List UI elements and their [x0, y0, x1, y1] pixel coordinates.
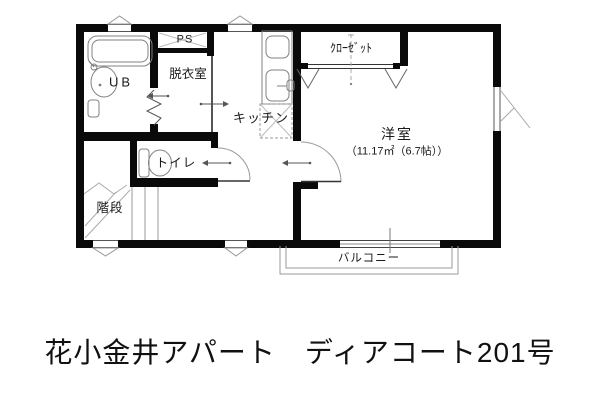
- room-label-stairs: 階段: [96, 202, 123, 215]
- western-room-door-swing-arc-icon: [301, 142, 341, 182]
- room-label-toilet: トイレ: [156, 157, 197, 170]
- room-label-unit-bath: UB: [109, 76, 133, 89]
- room-label-dressing-room: 脱衣室: [169, 68, 207, 81]
- casement-window-icon: [494, 87, 530, 131]
- bathtub-icon: [88, 36, 152, 66]
- kitchen-sink-icon: [266, 70, 294, 101]
- floorplan-page: UB PS 脱衣室 キッチン ｸﾛｰｾﾞｯﾄ 洋室 （11.17㎡（6.7帖））…: [0, 0, 600, 410]
- room-label-balcony: バルコニー: [338, 253, 400, 265]
- toilet-door-swing-arc-icon: [218, 148, 250, 181]
- gas-stove-icon: [266, 36, 289, 58]
- room-label-pipe-space: PS: [177, 35, 194, 46]
- sliding-window-icon: [340, 228, 440, 253]
- washer-space-icon: [88, 100, 99, 117]
- room-label-kitchen: キッチン: [233, 112, 289, 125]
- room-label-closet: ｸﾛｰｾﾞｯﾄ: [330, 42, 372, 54]
- page-title: 花小金井アパート ディアコート201号: [44, 331, 555, 371]
- room-area-western-room: （11.17㎡（6.7帖））: [346, 147, 449, 158]
- room-label-western-room: 洋室: [381, 127, 413, 141]
- dressing-room-sliding-door: [211, 56, 213, 132]
